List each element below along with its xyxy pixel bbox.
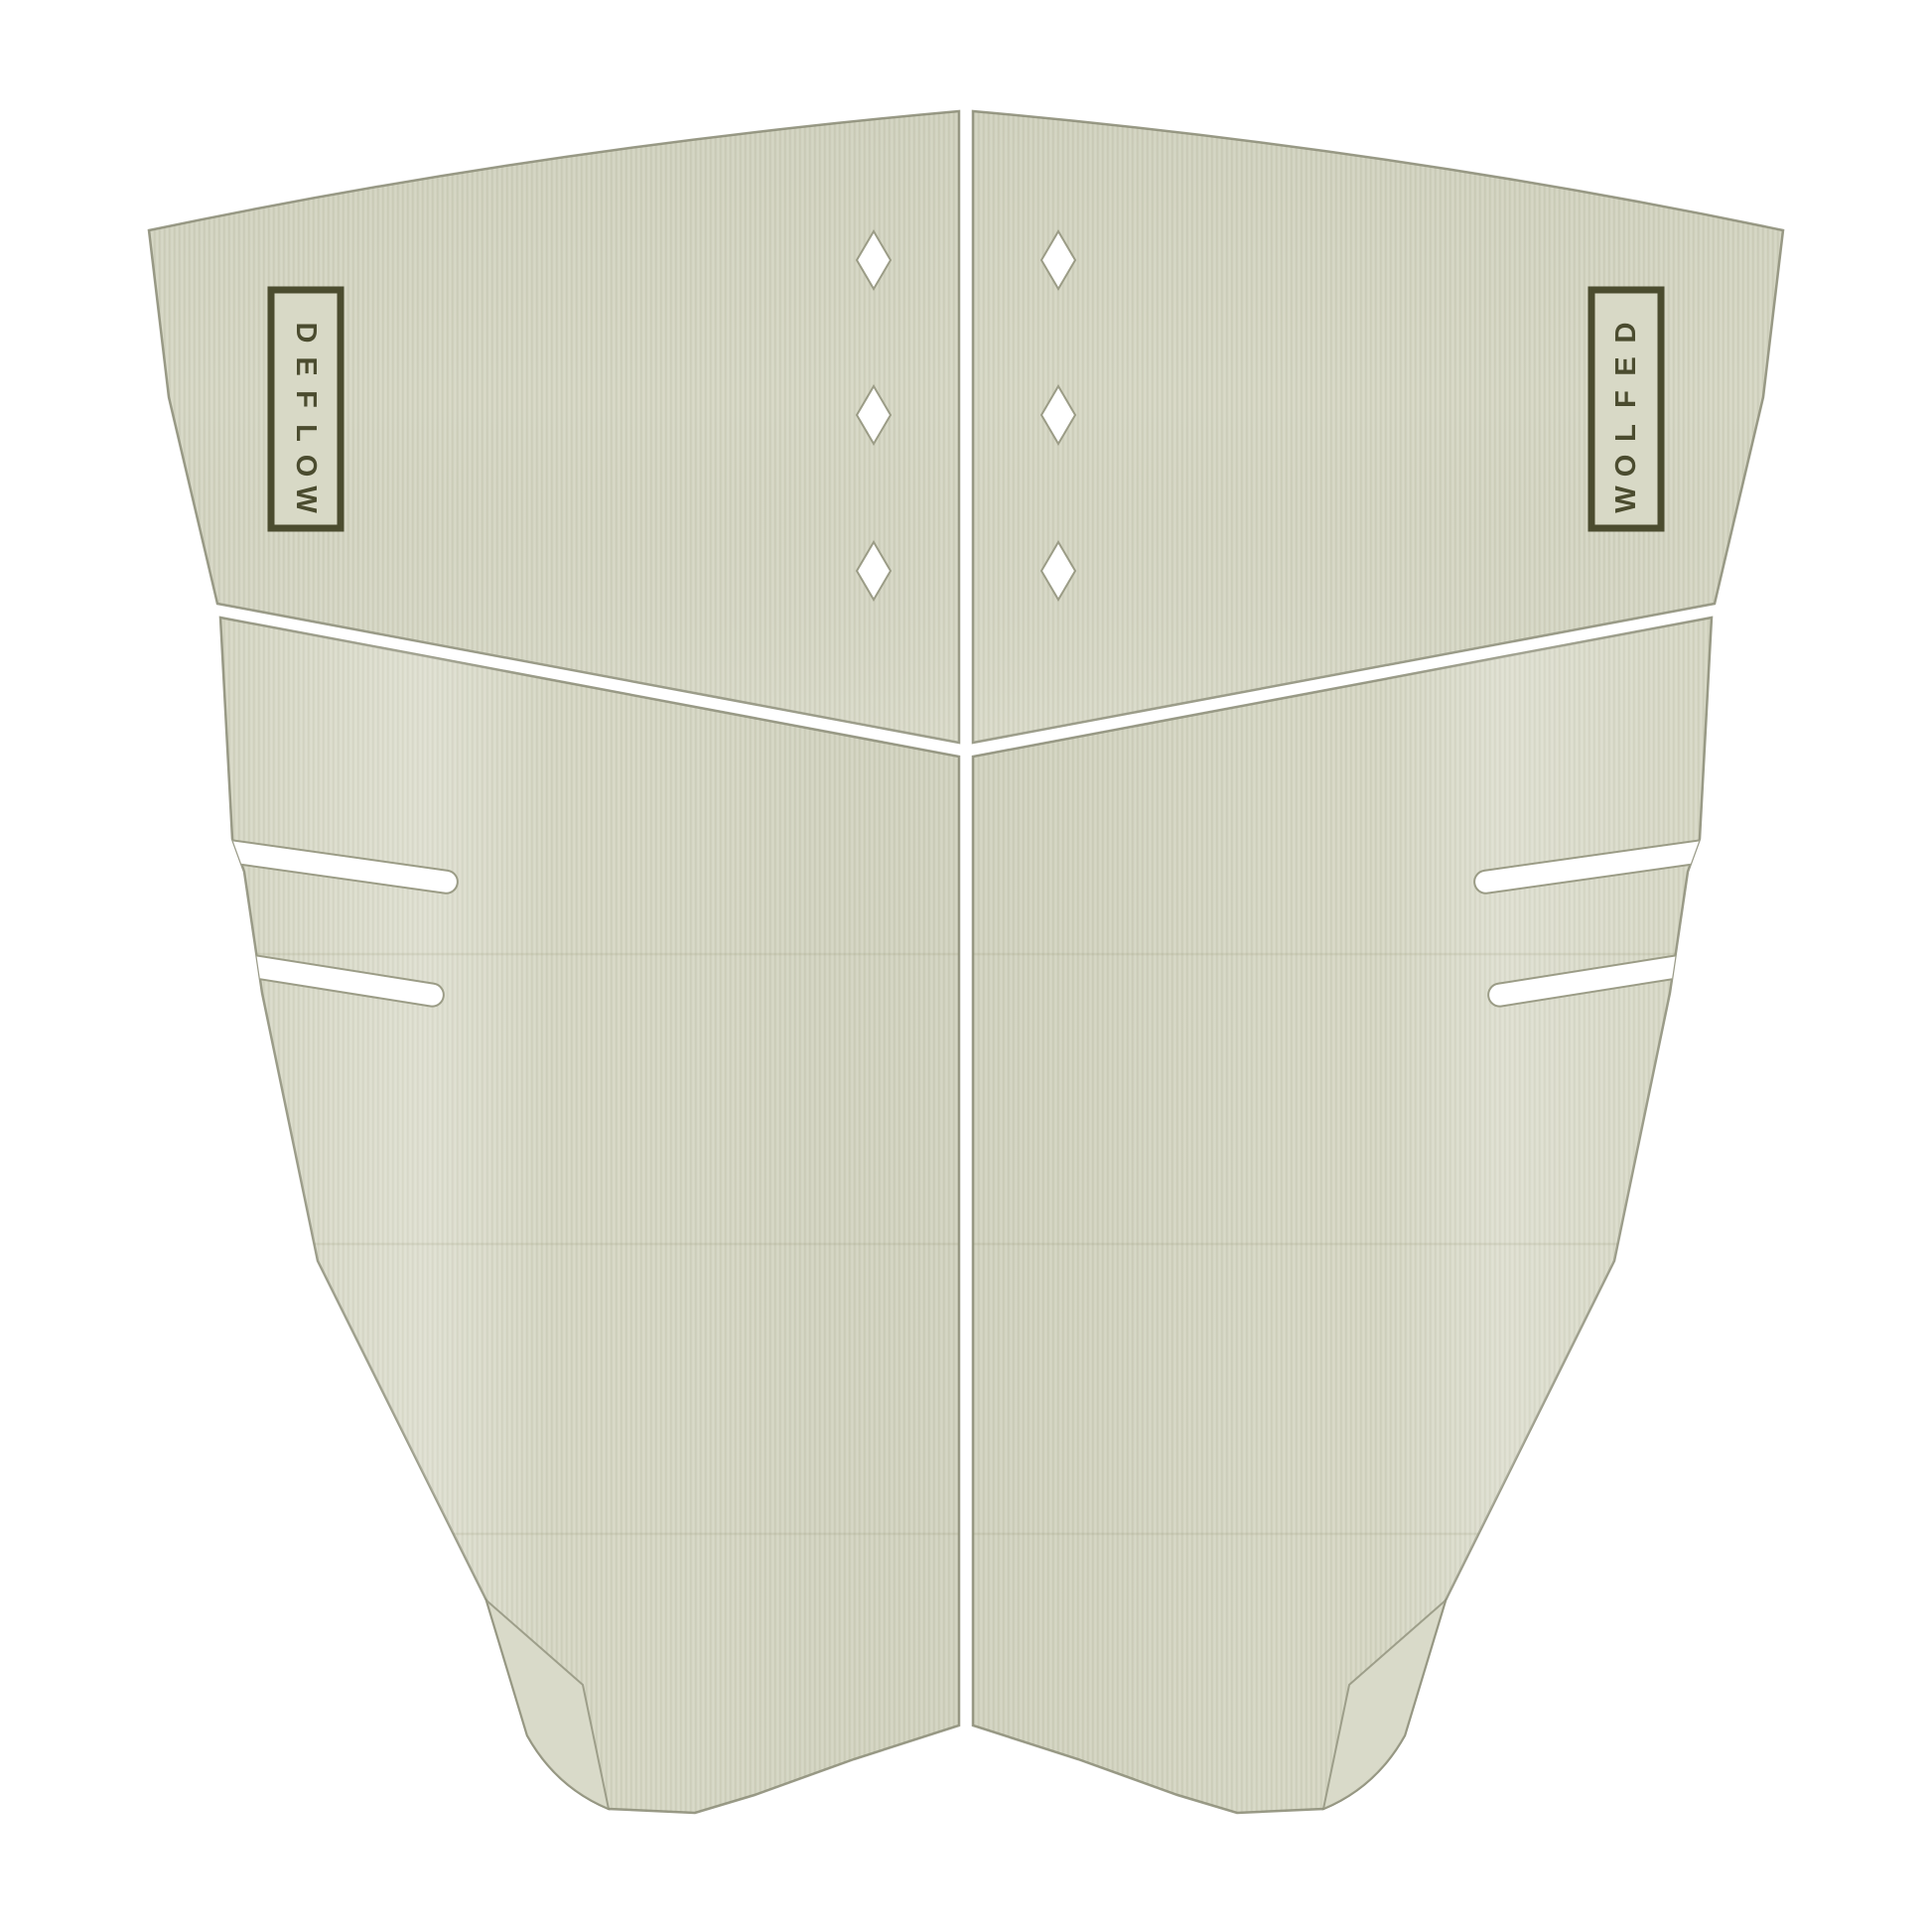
logo-letter: L [290, 424, 322, 442]
traction-pad-graphic: D E F L O W D E F L O W [0, 0, 1932, 1932]
product-image: D E F L O W D E F L O W [0, 0, 1932, 1932]
logo-letter: L [1610, 424, 1642, 442]
logo-letter: W [290, 485, 322, 513]
logo-letter: D [1610, 323, 1642, 344]
logo-letter: D [290, 323, 322, 344]
brand-logo-left: D E F L O W [271, 290, 341, 528]
logo-letter: F [1610, 390, 1642, 408]
logo-letter: W [1610, 485, 1642, 513]
logo-letter: O [1610, 455, 1642, 478]
logo-letter: E [1610, 356, 1642, 375]
logo-letter: E [290, 356, 322, 375]
logo-letter: O [290, 455, 322, 478]
brand-logo-right: D E F L O W [1591, 290, 1661, 528]
logo-letter: F [290, 390, 322, 408]
